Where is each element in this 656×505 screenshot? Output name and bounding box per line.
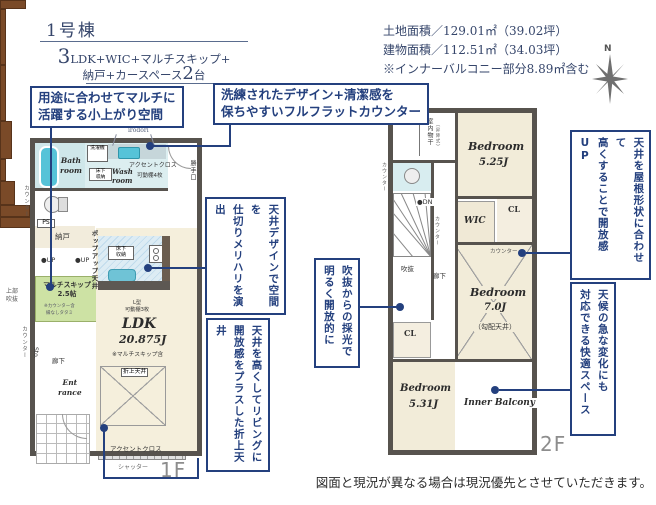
bedroom2-note: （勾配天井） <box>474 322 516 332</box>
title-underline <box>40 41 248 42</box>
ceiling-beam <box>0 9 6 65</box>
connector-weather <box>499 389 570 391</box>
floorplan-sheet: 1号棟 3LDK+WIC+マルチスキップ+ 納戸+カースペース2台 土地面積／1… <box>0 0 656 505</box>
underfloor-storage-wash: 床下 収納 <box>89 168 112 181</box>
popup-ceiling-label: ポップアップ天井 <box>89 230 99 290</box>
connector-oriage-v1 <box>103 428 105 479</box>
kitchen-counter <box>98 281 170 290</box>
callout-fukinuke-light-l2: 明るく開放的に <box>319 265 337 361</box>
layout-part3: 台 <box>194 68 206 82</box>
callout-fukinuke-light: 吹抜からの採光で 明るく開放的に <box>314 258 360 368</box>
kitchen-side-counter <box>162 236 170 281</box>
connector-ceiling-design <box>148 267 205 269</box>
callout-oriage-l1: 天井を高くしてリビングに <box>247 325 265 465</box>
layout-part2: 納戸+カースペース <box>83 68 183 82</box>
indoor-drying-sub: （昇降式） <box>434 122 440 150</box>
wall <box>455 242 532 245</box>
compass-icon <box>588 54 632 104</box>
toilet-counter <box>0 159 6 181</box>
cl2-label: CL <box>404 328 416 338</box>
multi-skip-note2: 縁なしタタミ <box>46 310 73 316</box>
building-area: 建物面積／112.51㎡（34.03坪） <box>383 41 589 60</box>
counter-left2-label: カウンター <box>20 326 28 359</box>
balcony-note: ※インナーバルコニー部分8.89㎡含む <box>383 60 589 79</box>
bedroom3-label: Bedroom <box>400 383 451 394</box>
callout-roof-ceiling-l2: 高くすることで開放感UP <box>575 137 611 273</box>
layout-underline <box>86 83 216 84</box>
backdoor-label: 勝手口 <box>188 160 197 181</box>
cl2-shelf <box>0 217 32 228</box>
property-info: 土地面積／129.01㎡（39.02坪） 建物面積／112.51㎡（34.03坪… <box>383 22 589 79</box>
bedroom1-label: Bedroom <box>468 140 524 153</box>
connector-counter-h <box>150 145 231 147</box>
connector-counter-v <box>229 123 231 147</box>
callout-ceiling-design-l2: 仕切りメリハリを演出 <box>210 204 246 308</box>
counter-toilet-label: カウンター <box>381 162 388 192</box>
layout-line2: 納戸+カースペース2台 <box>36 63 252 84</box>
connector-oriage-h <box>103 477 199 479</box>
ldk-label: LDK <box>122 316 156 332</box>
callout-roof-ceiling-l1: 天井を屋根形状に合わせて <box>611 137 647 273</box>
washroom-label: Wash room <box>112 168 133 186</box>
counter-left1-label: カウンター <box>22 185 30 218</box>
callout-ceiling-design-l1: 天井デザインで空間を <box>246 204 282 308</box>
connector-oriage-dot <box>100 424 108 432</box>
ceiling-beam <box>0 65 6 121</box>
callout-flat-counter: 洗練されたデザイン+清潔感を 保ちやすいフルフラットカウンター <box>213 83 429 125</box>
void-label: 吹抜 <box>400 263 415 273</box>
counter-bedroom-label: カウンター <box>490 247 518 255</box>
toilet-tank <box>58 197 68 212</box>
shelf-unit <box>0 0 26 9</box>
bedroom2-size: 7.0J <box>484 302 506 313</box>
callout-koagari: 用途に合わせてマルチに 活躍する小上がり空間 <box>30 86 184 128</box>
ldk-size-label: 20.875J <box>119 333 166 346</box>
bathtub-icon <box>39 146 59 188</box>
open-sanitary-sub: irodori <box>128 127 149 134</box>
wic-label: WIC <box>464 216 485 226</box>
wall <box>393 359 532 362</box>
callout-oriage-l2: 開放感をプラスした折上天井 <box>211 325 247 465</box>
wall <box>455 113 458 360</box>
connector-koagari <box>50 124 52 288</box>
connector-koagari-dot <box>46 283 54 291</box>
stairs-counter <box>0 181 15 205</box>
land-area: 土地面積／129.01㎡（39.02坪） <box>383 22 589 41</box>
sink-icon <box>118 147 140 159</box>
washer-box: 洗濯機 <box>87 145 108 162</box>
compass-n-label: N <box>604 44 612 54</box>
connector-ceiling-design-dot <box>144 264 152 272</box>
wall <box>455 196 532 199</box>
floor-label-2f: 2F <box>540 432 566 456</box>
wall <box>393 160 455 163</box>
toilet-icon <box>404 168 420 184</box>
disclaimer-text: 図面と現況が異なる場合は現況優先とさせていただきます。 <box>0 472 652 491</box>
nando-label: 納戸 <box>55 231 70 242</box>
upper-void-label: 上部 吹抜 <box>6 288 18 304</box>
shutter-label: シャッター <box>118 462 148 471</box>
callout-weather: 天候の急な変化にも 対応できる快適スペース <box>570 282 616 436</box>
callout-oriage: 天井を高くしてリビングに 開放感をプラスした折上天井 <box>206 318 270 472</box>
sto-label: Sto. <box>32 347 39 359</box>
hallway-1f-label: 廊下 <box>52 355 65 365</box>
counter-stairs-label: カウンター <box>434 216 441 246</box>
up-label-1: ●UP <box>40 256 56 264</box>
bedroom3-size: 5.31J <box>409 399 438 410</box>
up-label-2: ●UP <box>74 256 90 264</box>
multi-skip-note1: ※カウンター含 <box>44 303 75 309</box>
connector-counter-dot <box>146 142 154 150</box>
bedroom1-room <box>455 113 532 198</box>
callout-ceiling-design: 天井デザインで空間を 仕切りメリハリを演出 <box>205 197 286 315</box>
callout-fukinuke-light-l1: 吹抜からの採光で <box>337 265 355 361</box>
l-shelf-label: L型 可動棚3枚 <box>125 300 149 314</box>
connector-oriage-v2 <box>197 458 199 479</box>
bedroom1-size: 5.25J <box>479 157 508 168</box>
hallway-2f-label: 廊下 <box>433 270 446 280</box>
underfloor-storage-kitchen: 床下 収納 <box>108 246 134 260</box>
accent-cloth-top-label: アクセントクロス <box>129 160 177 169</box>
layout-num-2: 2 <box>182 63 193 84</box>
ps-label: PS <box>37 219 55 228</box>
connector-fukinuke-dot <box>396 303 404 311</box>
wall <box>35 188 168 191</box>
connector-roof <box>526 252 570 254</box>
callout-weather-l1: 天候の急な変化にも <box>593 289 611 429</box>
dn-label: ●DN <box>416 198 434 206</box>
connector-weather-dot <box>491 386 499 394</box>
building-title: 1号棟 <box>46 16 97 41</box>
bathroom-label: Bath room <box>60 156 82 176</box>
shoe-cabinet <box>0 121 12 159</box>
inner-balcony-label: Inner Balcony <box>462 398 537 408</box>
connector-roof-dot <box>518 249 526 257</box>
bedroom2-label: Bedroom <box>470 286 526 299</box>
entrance-label: Ent rance <box>58 378 82 398</box>
accent-cloth-bottom-label: アクセントクロス <box>110 443 162 453</box>
callout-weather-l2: 対応できる快適スペース <box>575 289 593 429</box>
callout-roof-ceiling: 天井を屋根形状に合わせて 高くすることで開放感UP <box>570 130 651 280</box>
ldk-note-label: ※マルチスキップ含 <box>112 349 163 358</box>
coffered-ceiling-label: 折上天井 <box>121 368 148 377</box>
cl1-label: CL <box>508 204 520 214</box>
shelf4-label: 可動棚4枚 <box>137 171 163 179</box>
